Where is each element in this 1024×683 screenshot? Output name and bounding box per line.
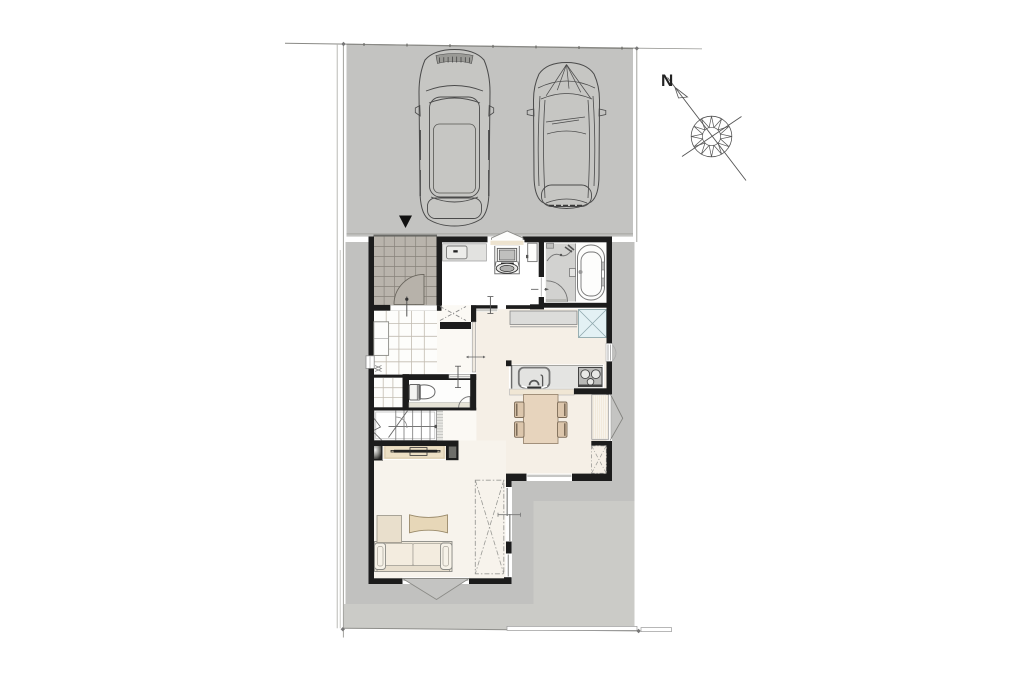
svg-text:N: N (661, 71, 673, 90)
